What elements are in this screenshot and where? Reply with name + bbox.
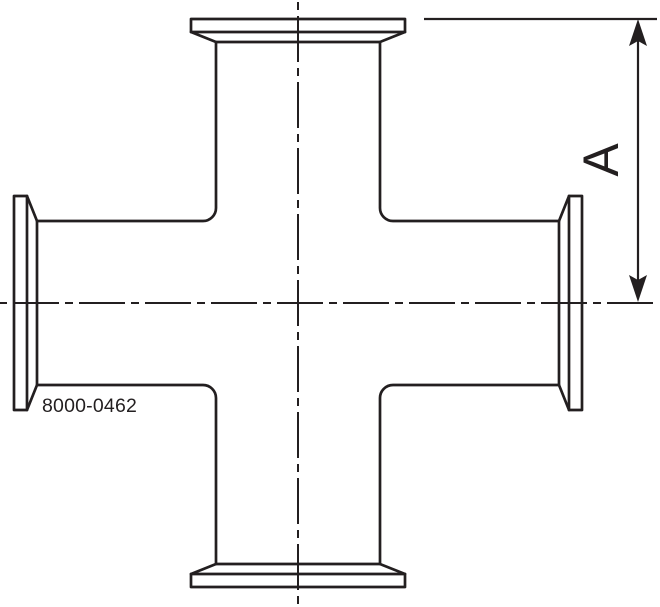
part-number-label: 8000-0462 xyxy=(42,395,137,417)
technical-drawing-cross-fitting: A 8000-0462 xyxy=(0,0,660,607)
dimension-label: A xyxy=(573,143,629,177)
drawing-canvas: A 8000-0462 xyxy=(0,0,660,607)
